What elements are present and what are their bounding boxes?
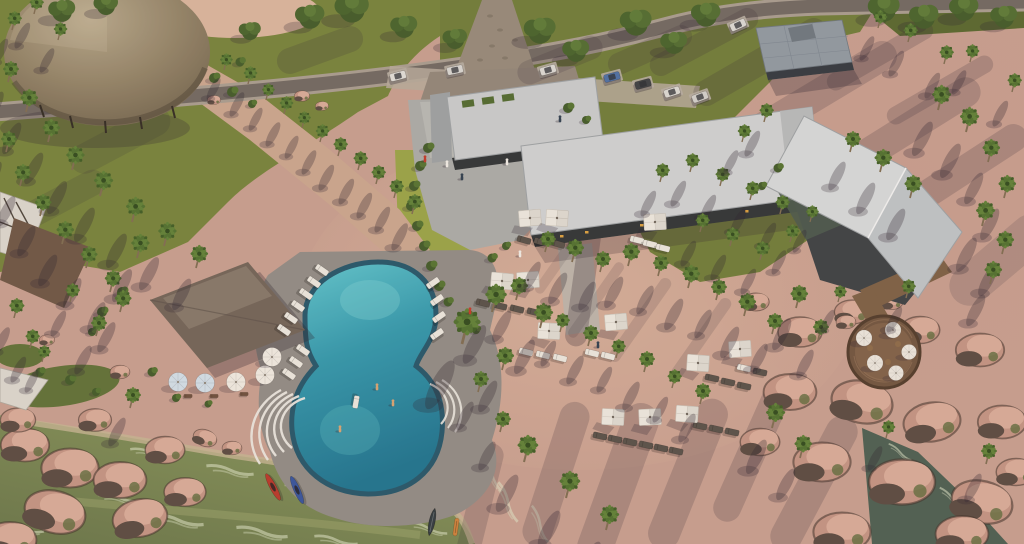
sunset-wash [0, 0, 1024, 544]
resort-aerial-render [0, 0, 1024, 544]
